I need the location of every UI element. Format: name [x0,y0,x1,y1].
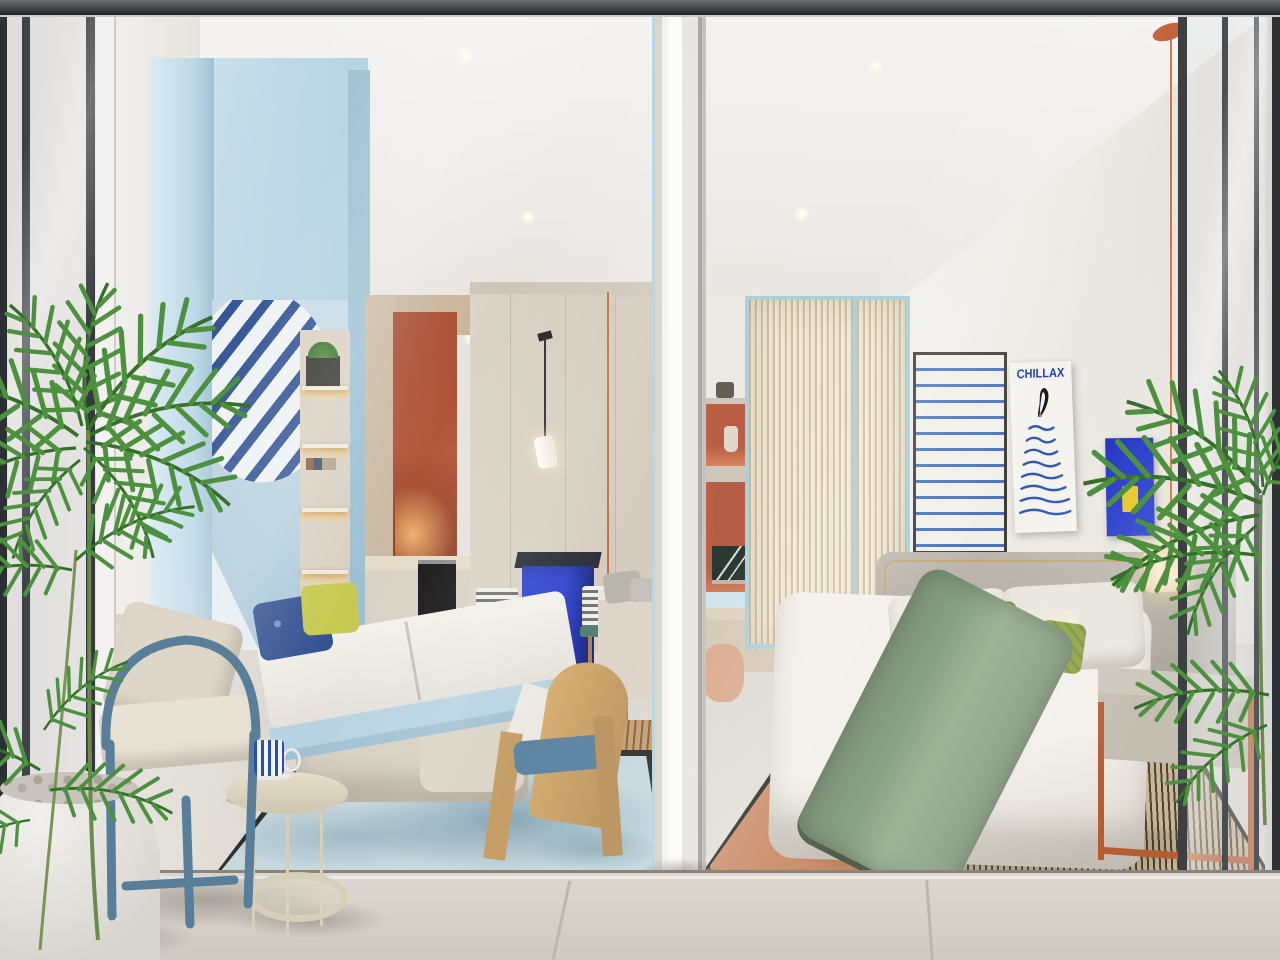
ceiling-spotlight [520,209,536,225]
ceiling-spotlight [868,58,884,74]
penguin-illustration [1030,386,1057,421]
palm-plant-left [0,130,310,960]
pendant-stem [544,338,546,440]
shelf-books [306,458,336,470]
palm-plant-right [1055,225,1280,825]
kitchen-cabinet-column [365,295,395,577]
sliding-door-divider [652,14,706,882]
under-cabinet-light-glow [395,484,455,556]
framed-wave-artwork [913,352,1007,554]
ceiling-spotlight [794,206,810,222]
shelf-planter-box [306,356,340,386]
facade-header-beam [0,0,1280,17]
small-sculpture [716,382,734,398]
partition-frame [745,296,910,300]
scene: CHILLAX [0,0,1280,960]
partition-frame [745,298,749,650]
wardrobe-soffit [470,282,658,294]
ceiling-spotlight [458,47,474,63]
vase [724,426,738,452]
peach-pouf [702,644,744,702]
